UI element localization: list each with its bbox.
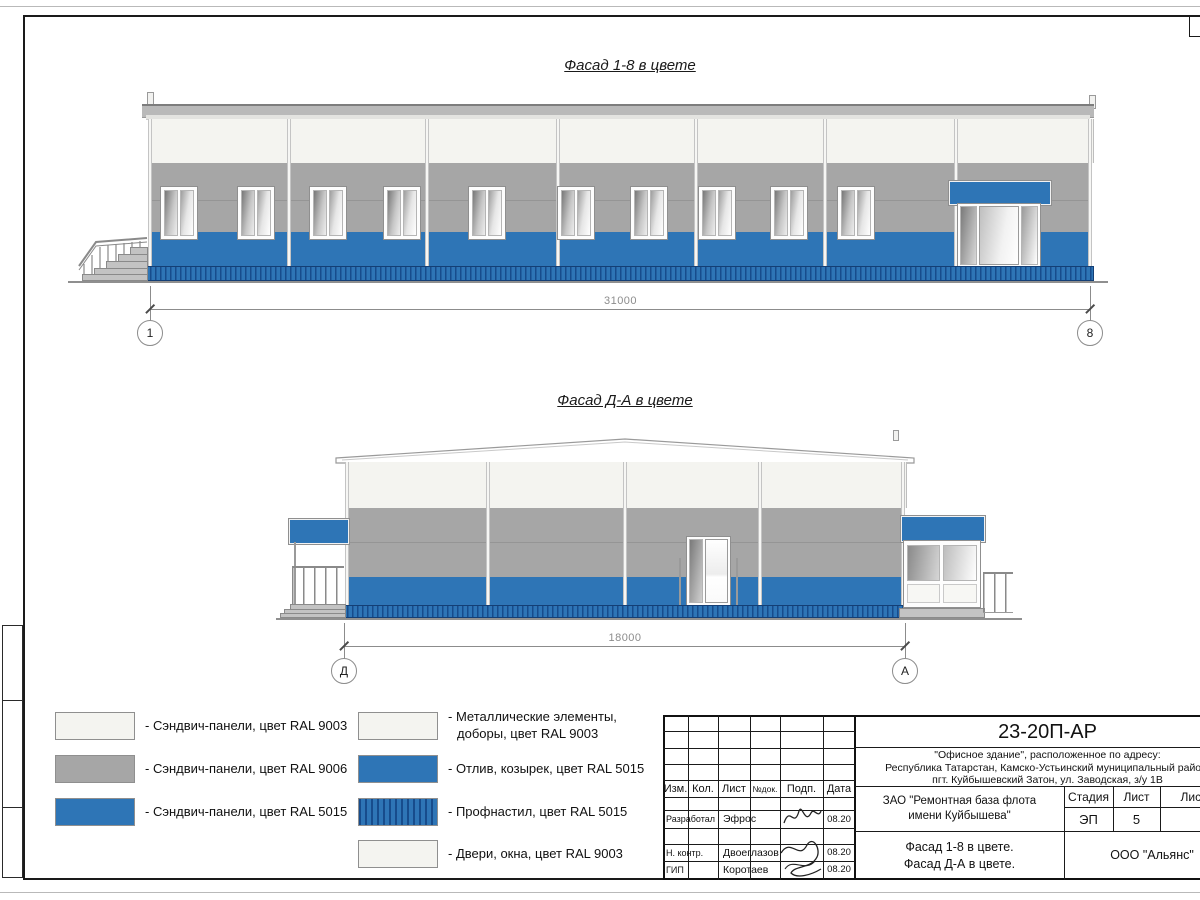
dimension-value: 31000 bbox=[150, 295, 1091, 307]
pilaster bbox=[623, 462, 627, 605]
dimension-line bbox=[344, 646, 906, 647]
tb-line bbox=[663, 748, 855, 749]
porch-canopy bbox=[289, 519, 349, 544]
vestibule-panel bbox=[943, 584, 977, 603]
window bbox=[837, 186, 875, 240]
tb-line bbox=[663, 764, 855, 765]
corrugated-plinth bbox=[144, 266, 1094, 281]
title-block: Изм. Кол. Лист №док. Подп. Дата Разработ… bbox=[663, 715, 1200, 880]
vestibule-fascia bbox=[901, 516, 985, 542]
tb-sheets-label: Листов bbox=[1160, 786, 1200, 807]
axis-label: Д bbox=[340, 664, 348, 678]
tb-content-line1: Фасад 1-8 в цвете. bbox=[855, 839, 1064, 856]
pilaster bbox=[1088, 119, 1092, 266]
door bbox=[686, 536, 731, 606]
tb-role: Н. контр. bbox=[663, 844, 718, 861]
tb-date: 08.20 bbox=[823, 810, 855, 828]
tb-line bbox=[663, 731, 855, 732]
frame-margin-box bbox=[2, 625, 23, 701]
legend-label: - Отлив, козырек, цвет RAL 5015 bbox=[448, 755, 672, 783]
dimension-value: 18000 bbox=[344, 632, 906, 644]
tb-line bbox=[663, 828, 855, 829]
frame-corner-box bbox=[1189, 15, 1200, 37]
legend-label: - Сэндвич-панели, цвет RAL 9006 bbox=[145, 755, 354, 783]
porch-railing bbox=[292, 566, 344, 607]
tb-stage-value: ЭП bbox=[1064, 807, 1113, 831]
legend-label: - Профнастил, цвет RAL 5015 bbox=[448, 798, 672, 826]
tb-doc-code: 23-20П-АР bbox=[855, 717, 1200, 747]
tb-date: 08.20 bbox=[823, 861, 855, 878]
window bbox=[237, 186, 275, 240]
window bbox=[630, 186, 668, 240]
legend-label: - Двери, окна, цвет RAL 9003 bbox=[448, 840, 672, 868]
tb-content-line2: Фасад Д-А в цвете. bbox=[855, 856, 1064, 873]
tb-line bbox=[855, 747, 1200, 748]
legend-swatch-profiled bbox=[358, 798, 438, 826]
tb-role: ГИП bbox=[663, 861, 718, 878]
entrance-door bbox=[979, 206, 1019, 265]
axis-bubble-d: Д bbox=[331, 658, 357, 684]
axis-bubble-1: 1 bbox=[137, 320, 163, 346]
door-leaf bbox=[705, 539, 728, 603]
window bbox=[383, 186, 421, 240]
facade-d-a-title: Фасад Д-А в цвете bbox=[330, 392, 920, 409]
legend-swatch-ral9003 bbox=[358, 840, 438, 868]
axis-bubble-a: А bbox=[892, 658, 918, 684]
frame-margin-box bbox=[2, 807, 23, 878]
legend-label: - Сэндвич-панели, цвет RAL 5015 bbox=[145, 798, 354, 826]
tb-col-izm: Изм. bbox=[663, 780, 688, 797]
stair-step bbox=[82, 274, 148, 281]
tb-object-line2: имени Куйбышева" bbox=[855, 809, 1064, 824]
entrance-canopy bbox=[949, 181, 1051, 205]
railing-post bbox=[736, 558, 738, 610]
pilaster bbox=[823, 119, 827, 266]
tb-object-line1: ЗАО "Ремонтная база флота bbox=[855, 794, 1064, 809]
tb-org: ООО "Альянс" bbox=[1064, 831, 1200, 878]
window bbox=[770, 186, 808, 240]
pilaster bbox=[758, 462, 762, 605]
door-glass bbox=[689, 539, 703, 603]
railing-post bbox=[679, 558, 681, 610]
tb-name: Эфрос bbox=[720, 810, 780, 828]
axis-bubble-8: 8 bbox=[1077, 320, 1103, 346]
tb-border bbox=[663, 878, 1200, 880]
vestibule-window bbox=[907, 545, 940, 581]
tb-address-line3: пгт. Куйбышевский Затон, ул. Заводская, … bbox=[855, 774, 1200, 787]
axis-label: 8 bbox=[1087, 326, 1094, 340]
tb-address-line2: Республика Татарстан, Камско-Устьинский … bbox=[855, 762, 1200, 775]
legend-swatch-ral9006 bbox=[55, 755, 135, 783]
ground-line bbox=[276, 618, 1022, 620]
tb-col-data: Дата bbox=[823, 780, 855, 797]
tb-sheet-label: Лист bbox=[1113, 786, 1160, 807]
axis-label: 1 bbox=[147, 326, 154, 340]
sidelight bbox=[1021, 206, 1038, 265]
tb-col-podp: Подп. bbox=[780, 780, 823, 797]
tb-stage-label: Стадия bbox=[1064, 786, 1113, 807]
pilaster bbox=[287, 119, 291, 266]
signature-icon bbox=[777, 835, 825, 879]
sheet-bottom-edge bbox=[0, 892, 1200, 893]
tb-address: "Офисное здание", расположенное по адрес… bbox=[855, 749, 1200, 785]
window bbox=[309, 186, 347, 240]
window bbox=[698, 186, 736, 240]
entrance-glazing bbox=[957, 203, 1041, 268]
sheet-top-edge bbox=[0, 6, 1200, 7]
window bbox=[468, 186, 506, 240]
legend-label: - Металлические элементы, доборы, цвет R… bbox=[448, 706, 672, 746]
drawing-sheet: { "figures": { "facade18": { "title": "Ф… bbox=[0, 0, 1200, 900]
ground-line bbox=[68, 281, 1108, 283]
frame-margin-box bbox=[2, 700, 23, 808]
tb-line bbox=[663, 797, 855, 798]
window bbox=[557, 186, 595, 240]
legend-swatch-ral9003 bbox=[55, 712, 135, 740]
tb-sheet-value: 5 bbox=[1113, 807, 1160, 831]
window bbox=[160, 186, 198, 240]
signature-icon bbox=[781, 801, 823, 831]
pilaster bbox=[425, 119, 429, 266]
tb-name: Двоеглазов bbox=[720, 844, 780, 861]
tb-address-line1: "Офисное здание", расположенное по адрес… bbox=[855, 749, 1200, 762]
facade-1-8-title: Фасад 1-8 в цвете bbox=[300, 57, 960, 74]
vestibule-railing bbox=[983, 572, 1013, 613]
gable-roof bbox=[330, 432, 920, 466]
legend-swatch-ral5015 bbox=[55, 798, 135, 826]
tb-col-ndok: №док. bbox=[750, 780, 780, 797]
tb-name: Коротаев bbox=[720, 861, 780, 878]
tb-object: ЗАО "Ремонтная база флота имени Куйбышев… bbox=[855, 791, 1064, 827]
axis-label: А bbox=[901, 664, 909, 678]
pilaster bbox=[486, 462, 490, 605]
corrugated-plinth bbox=[341, 605, 909, 618]
tb-role: Разработал bbox=[663, 810, 718, 828]
legend-swatch-ral9003 bbox=[358, 712, 438, 740]
tb-col-kol: Кол. bbox=[688, 780, 718, 797]
legend-swatch-ral5015 bbox=[358, 755, 438, 783]
tb-col-list: Лист bbox=[718, 780, 750, 797]
vestibule-window bbox=[943, 545, 977, 581]
tb-content: Фасад 1-8 в цвете. Фасад Д-А в цвете. bbox=[855, 836, 1064, 876]
vestibule-panel bbox=[907, 584, 940, 603]
roof-stub bbox=[893, 430, 899, 441]
vestibule-plinth bbox=[899, 608, 985, 618]
tb-date: 08.20 bbox=[823, 844, 855, 861]
legend-label: - Сэндвич-панели, цвет RAL 9003 bbox=[145, 712, 354, 740]
sidelight bbox=[960, 206, 977, 265]
dimension-line bbox=[150, 309, 1091, 310]
